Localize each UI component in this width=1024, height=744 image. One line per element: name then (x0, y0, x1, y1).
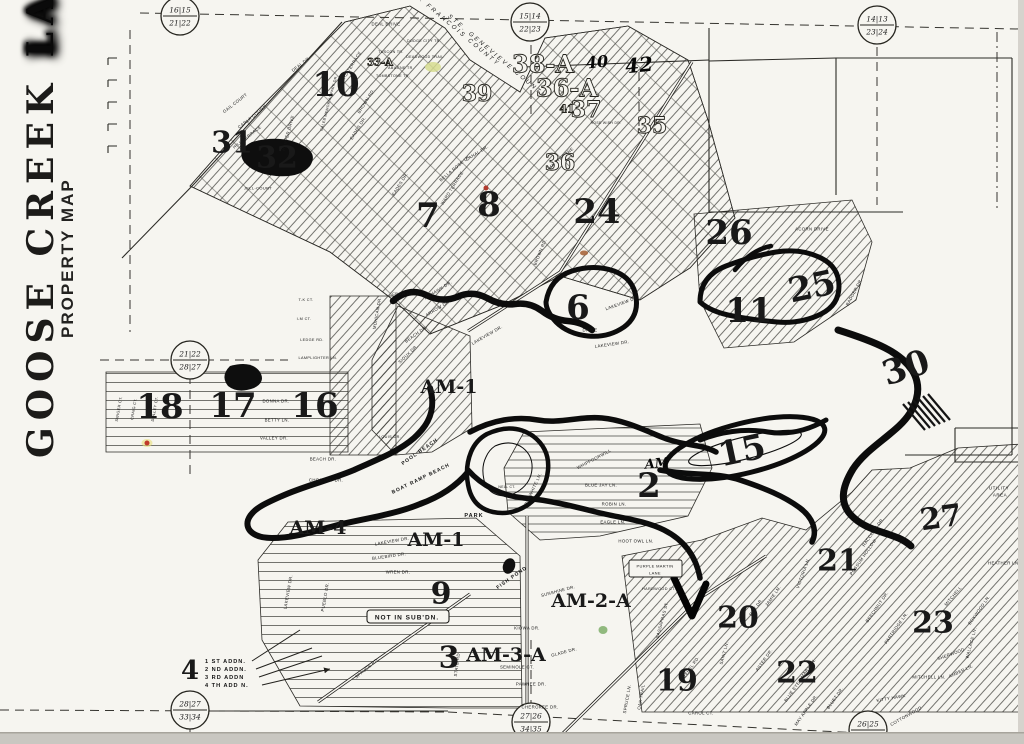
street-label-hardwood-ct: HARDWOOD CT. (642, 587, 676, 591)
street-label-crow-ln: CROW LN. (392, 292, 414, 296)
section-label-am-4: AM-4 (289, 517, 347, 539)
street-label-deadwood-trail: DEADWOOD TRAIL (406, 55, 444, 59)
street-label-purple-martin: PURPLE MARTIN (637, 564, 674, 569)
corner-sections-bottom: 33|34 (179, 713, 201, 722)
handwritten-40: 40 (585, 51, 609, 72)
handwritten-42: 42 (624, 52, 654, 79)
corner-marker-nw: 16|1521|22 (161, 0, 199, 35)
street-label-kiowa-dr: KIOWA DR. (514, 626, 540, 631)
corner-sections-bottom: 21|22 (168, 19, 191, 28)
section-label-39: 39 (462, 81, 493, 107)
street-label-carol-ct: CAROL CT. (688, 711, 713, 716)
section-label-am-2-a: AM-2-A (550, 590, 631, 612)
corner-sections-bottom: 23|24 (865, 28, 888, 37)
street-label-deal-drive: DEAL DRIVE (372, 22, 401, 27)
section-label-18: 18 (136, 387, 183, 427)
map-label-park: PARK (464, 513, 483, 519)
street-label-acorn-drive: ACORN DRIVE (795, 227, 829, 232)
corner-sections-bottom: 22|23 (518, 25, 541, 34)
street-label-spruce-ln: SPRUCE LN. (622, 684, 632, 714)
section-label-24: 24 (573, 192, 620, 232)
corner-marker-n: 15|1422|23 (511, 3, 549, 41)
street-label-lane: LANE (649, 571, 661, 576)
section-label-am-1: AM-1 (407, 529, 465, 551)
additions-legend: 1 ST ADDN.2 ND ADDN.3 RD ADDN4 TH ADD N. (205, 659, 249, 689)
corner-marker-w: 21|2228|27 (171, 341, 209, 379)
street-label-betty-ln: BETTY LN. (265, 418, 290, 423)
map-label-area: AREA (993, 493, 1007, 498)
corner-sections-top: 15|14 (519, 12, 541, 21)
section-label-20: 20 (717, 601, 759, 636)
street-label-drive: DRIVE (583, 328, 598, 333)
section-label-8: 8 (477, 185, 501, 225)
street-label-gail-court: GAIL COURT (222, 92, 248, 114)
street-label-dodge-city-tr: DODGE CITY TR. (407, 39, 441, 43)
street-label-eagle-ln: EAGLE LN. (600, 520, 625, 525)
section-label-23: 23 (912, 606, 954, 641)
street-label-tuscon-tr: TUSCON TR. (378, 50, 403, 54)
corner-sections-top: 27|26 (519, 712, 542, 721)
corner-sections-top: 16|15 (169, 6, 191, 15)
street-label-nell-ct: NELL CT. (498, 485, 515, 489)
map-label-not-in-sub-dn: NOT IN SUB'DN. (375, 615, 439, 622)
red-dot (484, 186, 489, 191)
section-label-19: 19 (656, 664, 698, 699)
street-label-ledge-rd: LEDGE RD. (300, 338, 324, 342)
section-label-33-a: 33-A (367, 58, 393, 69)
street-label-robin-ln: ROBIN LN. (602, 502, 627, 507)
section-label-7: 7 (416, 196, 440, 236)
street-label-choctaw-dr: CHOCTAW DR. (309, 478, 343, 483)
legend-item-4-th-add-n: 4 TH ADD N. (205, 683, 249, 689)
section-label-36: 36 (545, 150, 576, 176)
legend-item-1-st-addn: 1 ST ADDN. (205, 659, 246, 665)
corner-sections-top: 21|22 (178, 350, 201, 359)
scanned-property-map-page: 16|1521|2215|1422|2314|1323|2421|2228|27… (0, 0, 1024, 744)
green-dot (599, 626, 608, 634)
street-label-valley-dr: VALLEY DR. (260, 436, 288, 441)
corner-marker-ne: 14|1323|24 (858, 6, 896, 44)
corner-sections-top: 14|13 (866, 15, 888, 24)
corner-sections-bottom: 28|27 (178, 363, 201, 372)
section-label-22: 22 (776, 656, 818, 691)
section-label-27: 27 (918, 498, 964, 538)
street-label-hoot-owl-ln: HOOT OWL LN. (618, 539, 653, 544)
street-label-blue-jay-ln: BLUE JAY LN. (585, 483, 617, 488)
section-label-26: 26 (705, 213, 752, 253)
section-label-31: 31 (211, 126, 253, 161)
rust-mark (580, 251, 588, 256)
street-label-tombstone-tr: TOMBSTONE TR. (376, 74, 410, 78)
section-label-11: 11 (725, 291, 772, 331)
section-label-10: 10 (312, 65, 359, 105)
handwritten-am: AM (642, 455, 671, 473)
street-label-donna-dr: DONNA DR. (262, 399, 289, 404)
street-label-heather-ln: HEATHER LN. (988, 561, 1020, 566)
street-label-i-m-ct: I-M CT. (297, 317, 312, 321)
street-label-jell-court: JELL-COURT (244, 186, 272, 191)
corner-marker-sw: 28|2733|34 (171, 691, 209, 729)
section-label-am-1: AM-1 (420, 376, 478, 398)
street-label-lakeview-dr: LAKEVIEW DR. (594, 339, 629, 349)
street-label-beach-dr: BEACH DR. (310, 457, 337, 462)
title-word-goose: GOOSE (20, 276, 62, 458)
red-dot (145, 441, 150, 446)
legend-item-2-nd-addn: 2 ND ADDN. (205, 667, 247, 673)
title-word-creek: CREEK (20, 77, 62, 257)
street-label-lamplighter-ln: LAMPLIGHTER LN. (298, 356, 337, 360)
section-label-6: 6 (566, 288, 590, 328)
section-label-17: 17 (209, 386, 256, 426)
section-label-9: 9 (431, 577, 452, 612)
street-label-wren-dr: WREN DR. (386, 570, 411, 575)
section-label-32: 32 (256, 141, 298, 176)
corner-sections-top: 28|27 (178, 700, 201, 709)
legend-item-3-rd-addn: 3 RD ADDN (205, 675, 244, 681)
property-map: 16|1521|2215|1422|2314|1323|2421|2228|27… (0, 0, 1024, 744)
street-label-cherokee-dr: CHEROKEE DR. (522, 705, 559, 710)
map-subtitle: PROPERTY MAP (58, 198, 82, 338)
section-label-am-3-a: AM-3-A (465, 644, 546, 666)
section-label-4: 4 (181, 656, 199, 686)
title-word-lake: LAKE (20, 0, 62, 57)
section-label-3: 3 (439, 641, 460, 676)
street-label-mitchell-ln: MITCHELL LN. (912, 675, 945, 680)
corner-sections-top: 26|25 (856, 720, 879, 729)
street-label-louis-dr: LOUIS DR. (379, 435, 401, 439)
map-label-utility: UTILITY (989, 486, 1009, 491)
yellow-highlight (425, 62, 441, 72)
section-label-37: 37 (571, 97, 602, 123)
section-label-35: 35 (637, 113, 668, 139)
street-label-t-k-ct: T-K CT. (298, 298, 313, 302)
section-label-21: 21 (817, 544, 859, 579)
street-label-glade-dr: GLADE DR. (551, 646, 578, 658)
section-label-16: 16 (291, 386, 338, 426)
street-label-pawnee-dr: PAWNEE DR. (516, 682, 546, 687)
